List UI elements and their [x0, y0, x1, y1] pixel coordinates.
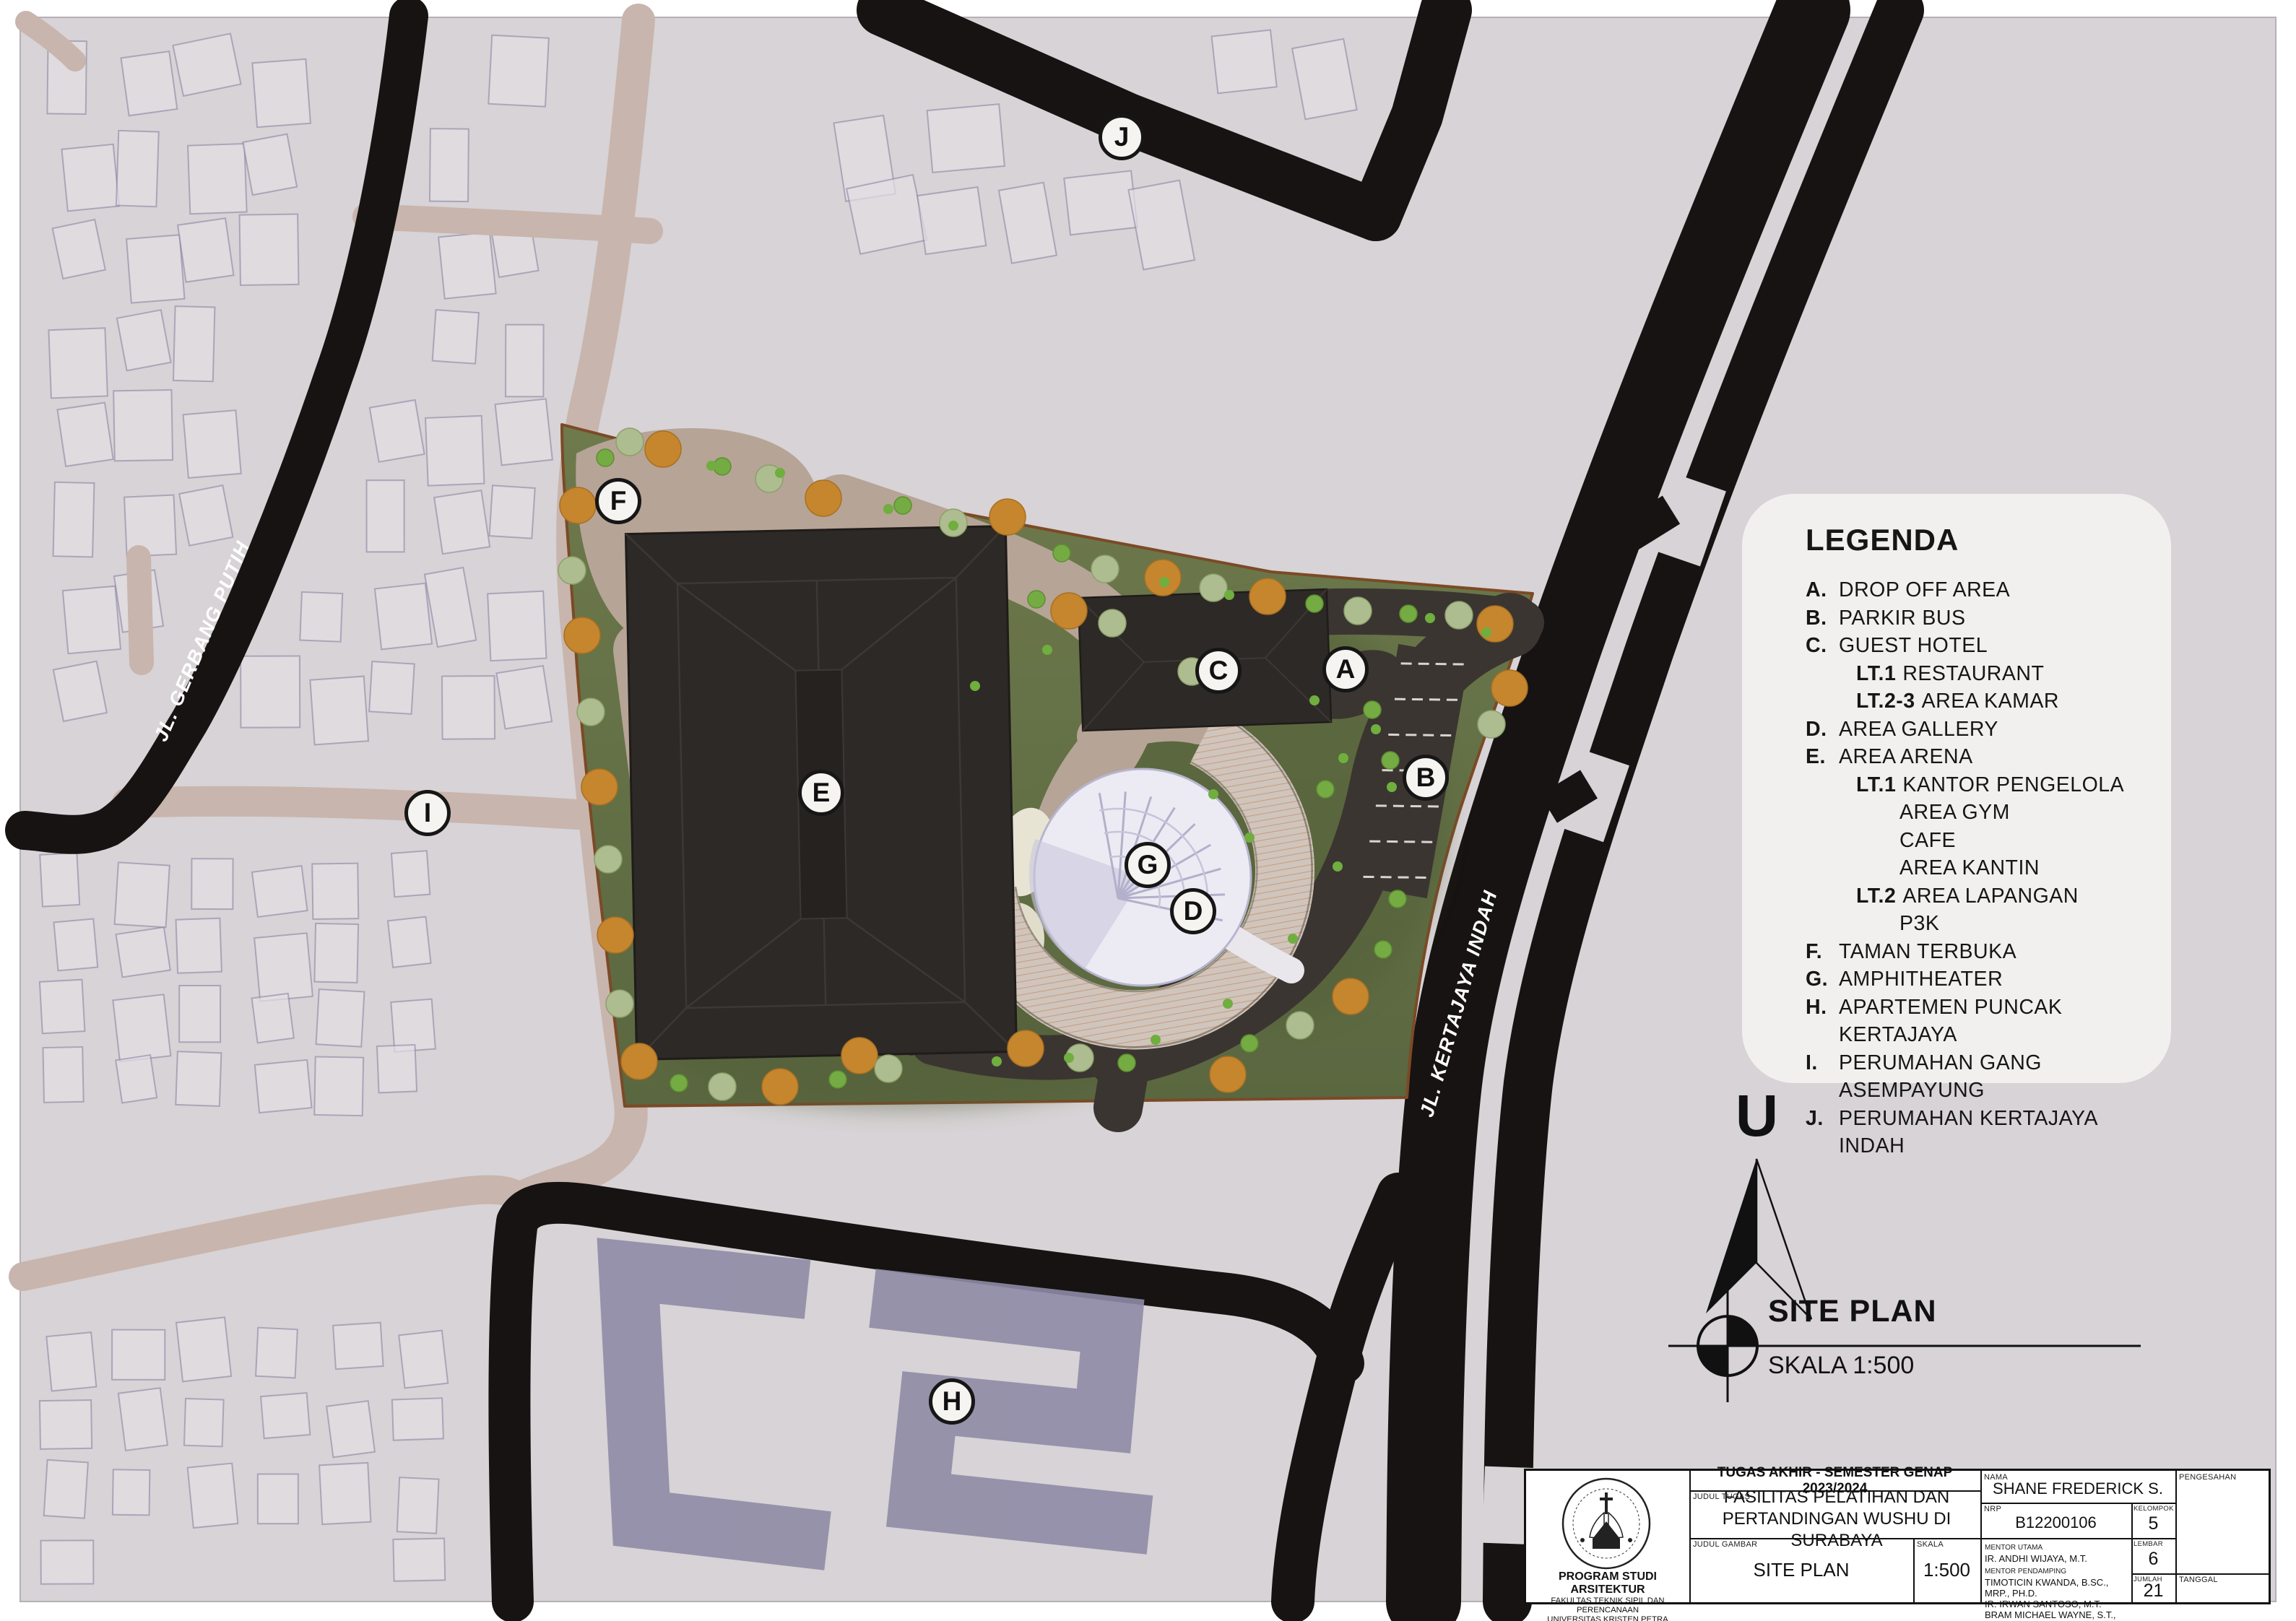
skala-value: 1:500 [1913, 1538, 1980, 1602]
nrp-value: B12200106 [1980, 1507, 2131, 1538]
divider [1980, 1503, 2175, 1504]
mentor-utama: IR. ANDHI WIJAYA, M.T. [1985, 1553, 2131, 1564]
legend-item: I.PERUMAHAN GANG ASEMPAYUNG [1806, 1049, 2149, 1105]
north-label: U [1701, 1087, 1813, 1146]
title-block: PROGRAM STUDI ARSITEKTUR FAKULTAS TEKNIK… [1524, 1469, 2271, 1604]
map-label-F: F [595, 478, 641, 524]
legend-item: LT.1RESTAURANT [1806, 660, 2149, 688]
map-label-G: G [1125, 842, 1171, 888]
mentor-pendamping: TIMOTICIN KWANDA, B.SC., MRP., PH.D. [1985, 1577, 2131, 1599]
mentor-block: MENTOR UTAMA IR. ANDHI WIJAYA, M.T. MENT… [1980, 1538, 2131, 1602]
judul-gambar: SITE PLAN [1689, 1538, 1913, 1602]
mentor-pendamping: BRAM MICHAEL WAYNE, S.T., M.ARS. [1985, 1609, 2131, 1621]
map-label-J: J [1099, 114, 1145, 160]
legend-item: AREA GYM [1806, 799, 2149, 827]
site-plan-sheet: A B C D E F G H I J JL. GERBANG PUTIH JL… [0, 0, 2296, 1621]
legend-item: P3K [1806, 910, 2149, 938]
map-label-C: C [1195, 648, 1242, 694]
legend-item: A.DROP OFF AREA [1806, 576, 2149, 604]
legend-title: LEGENDA [1806, 523, 2149, 557]
legend-item: F.TAMAN TERBUKA [1806, 938, 2149, 966]
legend-item: D.AREA GALLERY [1806, 716, 2149, 744]
divider [2175, 1573, 2269, 1575]
kelompok-value: 5 [2131, 1510, 2175, 1538]
nama-value: SHANE FREDERICK S. [1980, 1475, 2175, 1503]
legend-item: E.AREA ARENA [1806, 743, 2149, 771]
legend-item: B.PARKIR BUS [1806, 604, 2149, 633]
drawing-scale: SKALA 1:500 [1768, 1352, 1914, 1380]
legend-item: C.GUEST HOTEL [1806, 632, 2149, 660]
drawing-title: SITE PLAN [1768, 1294, 1937, 1329]
map-label-H: H [929, 1378, 975, 1425]
legend-item: H.APARTEMEN PUNCAK KERTAJAYA [1806, 994, 2149, 1049]
institution-block: PROGRAM STUDI ARSITEKTUR FAKULTAS TEKNIK… [1526, 1570, 1689, 1621]
judul-tugas: FASILITAS PELATIHAN DAN PERTANDINGAN WUS… [1693, 1490, 1977, 1538]
map-label-I: I [404, 790, 451, 836]
mentor-pendamping: IR. IRWAN SANTOSO, M.T. [1985, 1599, 2131, 1609]
tanggal-label: TANGGAL [2179, 1576, 2218, 1584]
map-label-D: D [1170, 888, 1216, 934]
mentor-utama-label: MENTOR UTAMA [1985, 1542, 2131, 1553]
legend-item: G.AMPHITHEATER [1806, 965, 2149, 994]
university-logo [1559, 1477, 1653, 1570]
mentor-pendamping-label: MENTOR PENDAMPING [1985, 1566, 2131, 1577]
map-label-A: A [1322, 646, 1369, 692]
legend-item: LT.2-3AREA KAMAR [1806, 687, 2149, 716]
legend-panel: LEGENDA A.DROP OFF AREA B.PARKIR BUS C.G… [1742, 494, 2171, 1083]
legend-item: CAFE [1806, 827, 2149, 855]
divider [2131, 1573, 2175, 1575]
map-label-E: E [798, 770, 844, 816]
jumlah-value: 21 [2131, 1579, 2175, 1602]
legend-item: J.PERUMAHAN KERTAJAYA INDAH [1806, 1105, 2149, 1160]
legend-item: LT.1KANTOR PENGELOLA [1806, 771, 2149, 799]
map-label-B: B [1403, 755, 1449, 801]
legend-item: LT.2AREA LAPANGAN [1806, 882, 2149, 911]
pengesahan-label: PENGESAHAN [2179, 1473, 2236, 1482]
drawing-title-group: SITE PLAN SKALA 1:500 [1661, 1278, 2167, 1412]
divider [2175, 1471, 2177, 1602]
legend-item: AREA KANTIN [1806, 854, 2149, 882]
lembar-value: 6 [2131, 1544, 2175, 1573]
